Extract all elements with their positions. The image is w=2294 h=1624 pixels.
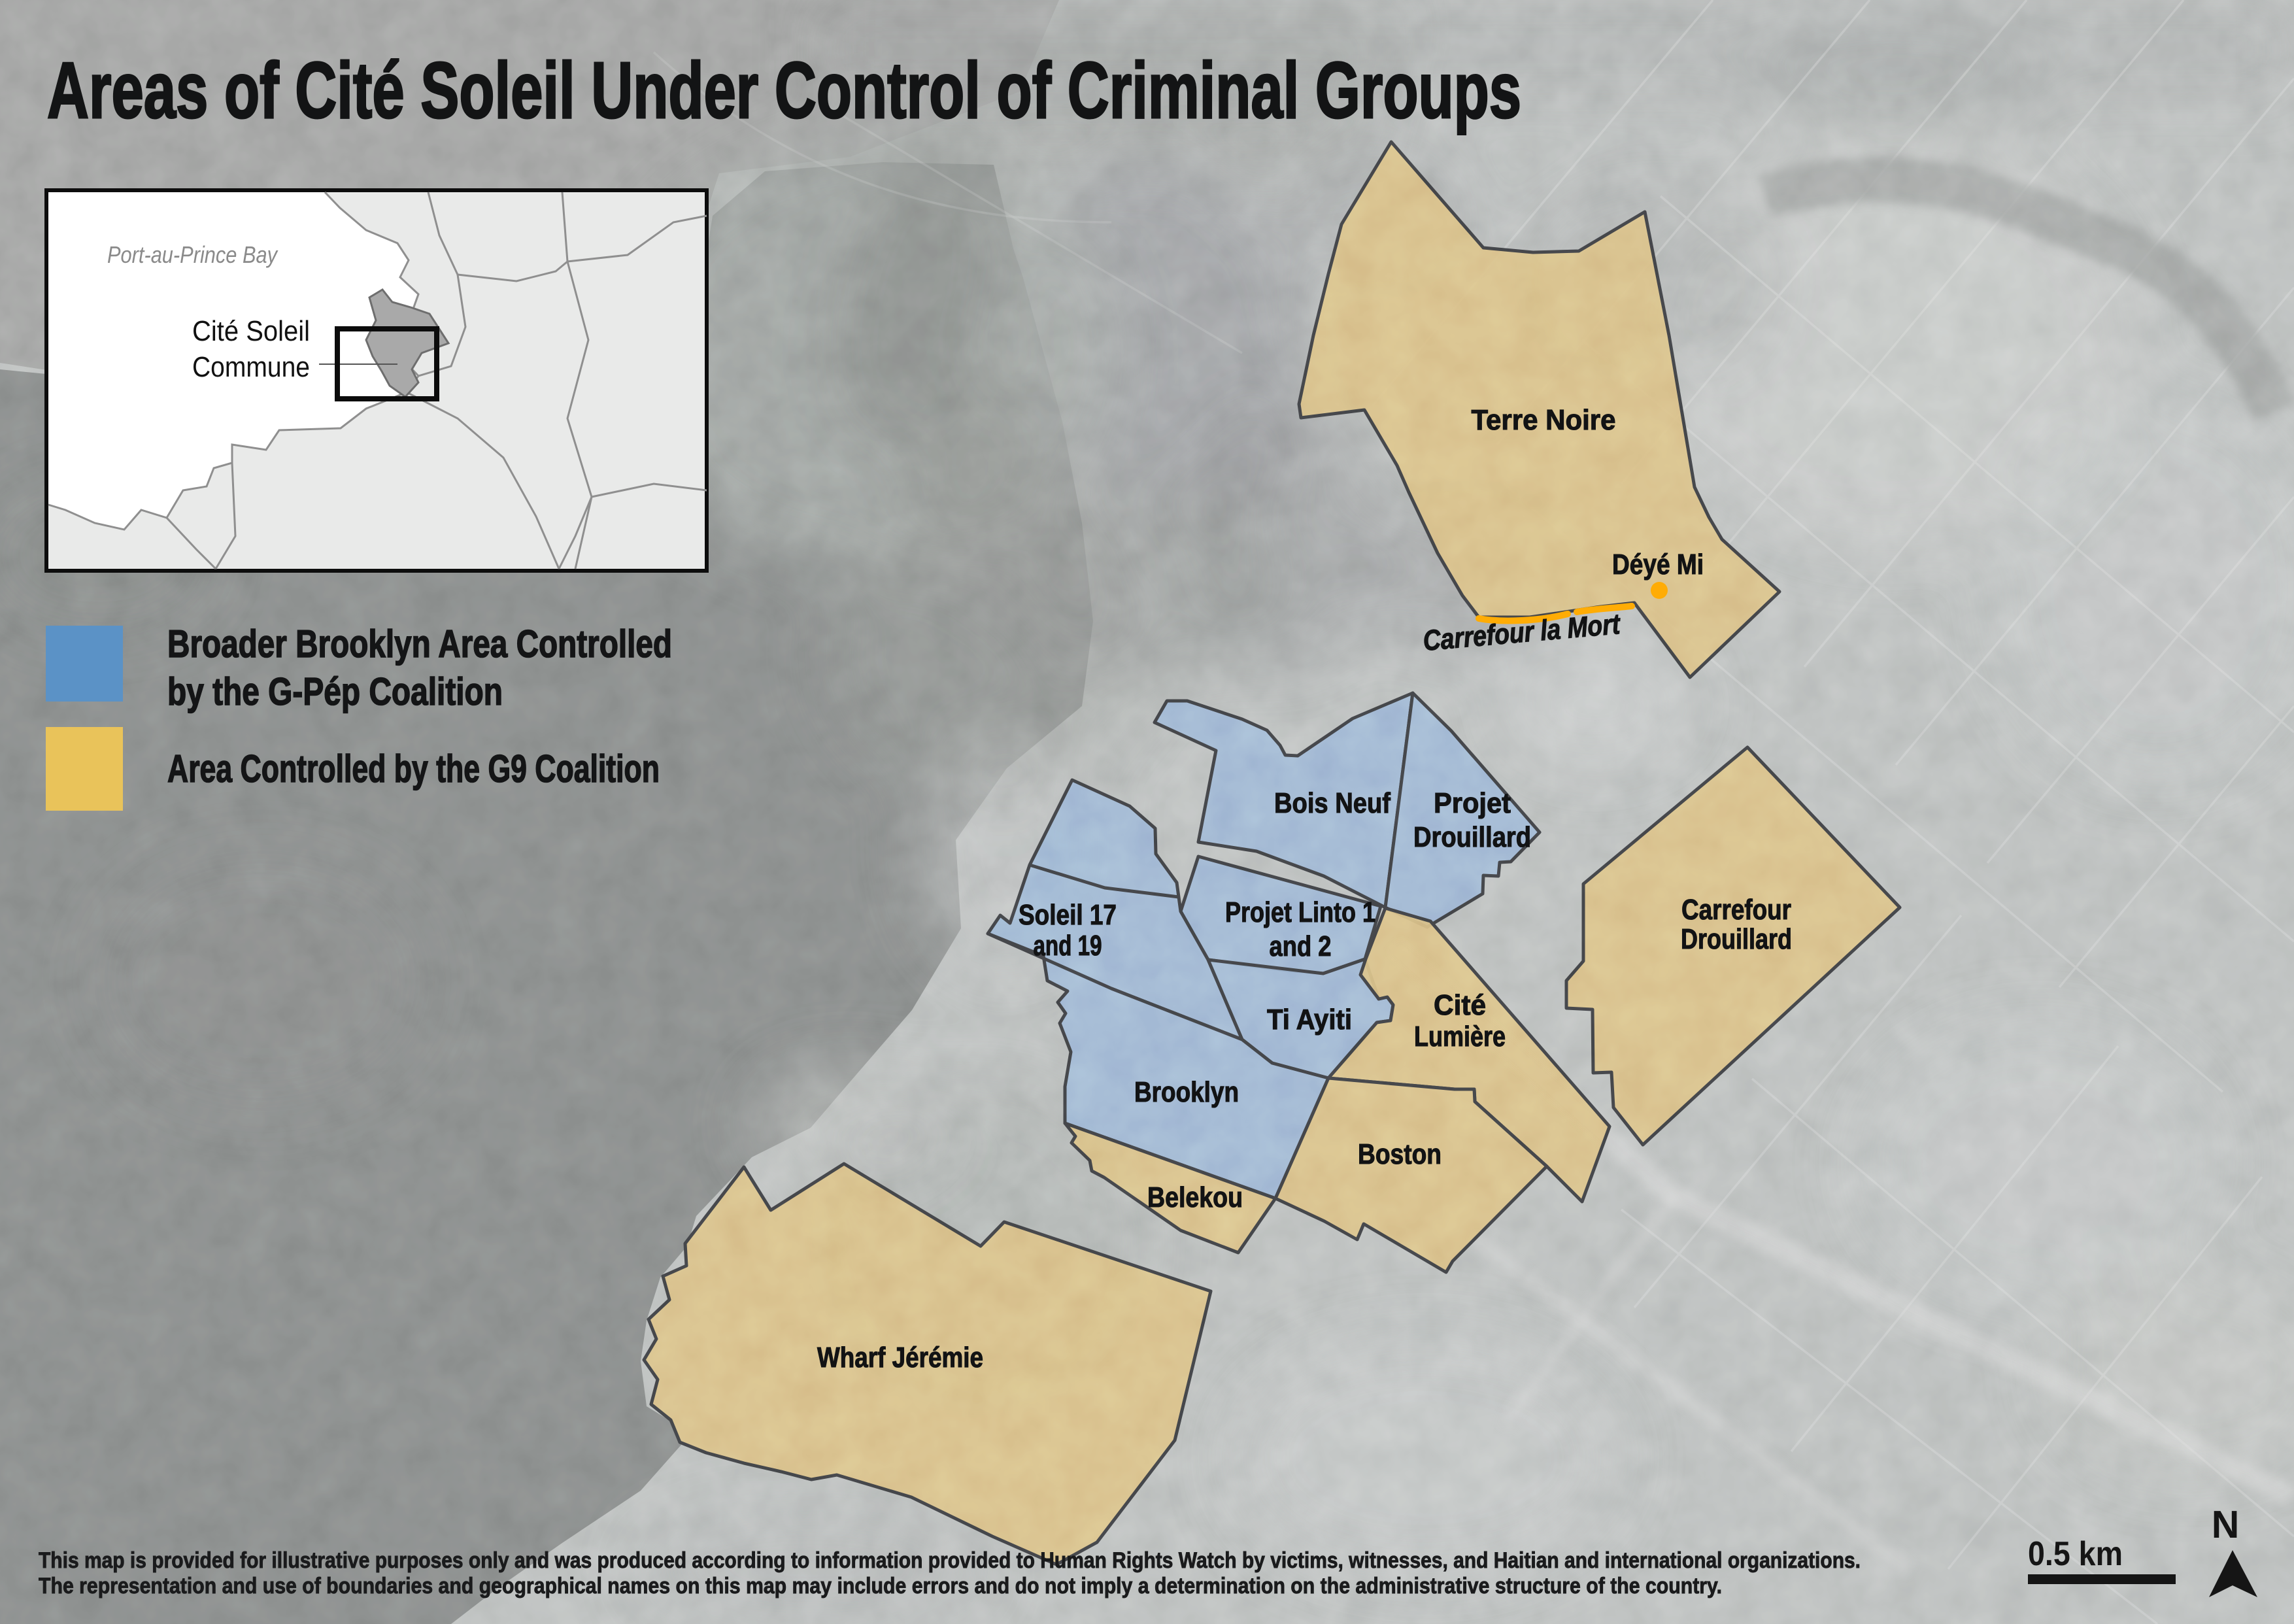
svg-text:Carrefour: Carrefour bbox=[1681, 894, 1791, 926]
svg-text:and 2: and 2 bbox=[1270, 930, 1332, 962]
svg-text:Drouillard: Drouillard bbox=[1681, 923, 1792, 955]
svg-text:Area Controlled by the G9 Coal: Area Controlled by the G9 Coalition bbox=[167, 747, 660, 790]
svg-text:Boston: Boston bbox=[1358, 1138, 1442, 1170]
svg-text:Commune: Commune bbox=[192, 351, 310, 383]
svg-text:The representation and use of: The representation and use of boundaries… bbox=[39, 1574, 1722, 1599]
svg-text:Cité Soleil: Cité Soleil bbox=[192, 315, 310, 347]
svg-text:0.5 km: 0.5 km bbox=[2028, 1535, 2123, 1573]
svg-text:Wharf Jérémie: Wharf Jérémie bbox=[817, 1342, 983, 1374]
svg-text:N: N bbox=[2212, 1503, 2240, 1546]
svg-text:Belekou: Belekou bbox=[1147, 1181, 1243, 1213]
svg-text:Port-au-Prince Bay: Port-au-Prince Bay bbox=[107, 241, 278, 268]
svg-text:Ti Ayiti: Ti Ayiti bbox=[1267, 1004, 1352, 1036]
svg-text:Cité: Cité bbox=[1434, 989, 1486, 1021]
svg-text:Déyé Mi: Déyé Mi bbox=[1612, 549, 1704, 581]
svg-text:by the G-Pép Coalition: by the G-Pép Coalition bbox=[167, 670, 503, 713]
svg-text:Areas of Cité Soleil Under Con: Areas of Cité Soleil Under Control of Cr… bbox=[47, 46, 1521, 135]
svg-text:Bois Neuf: Bois Neuf bbox=[1274, 787, 1391, 819]
svg-text:Soleil 17: Soleil 17 bbox=[1019, 899, 1117, 931]
svg-text:Terre Noire: Terre Noire bbox=[1472, 404, 1616, 436]
svg-text:Brooklyn: Brooklyn bbox=[1134, 1076, 1239, 1108]
svg-text:Projet: Projet bbox=[1434, 787, 1511, 819]
svg-text:Lumière: Lumière bbox=[1414, 1021, 1506, 1053]
svg-text:Drouillard: Drouillard bbox=[1413, 821, 1531, 853]
svg-text:and 19: and 19 bbox=[1034, 930, 1102, 962]
svg-text:Broader Brooklyn Area Controll: Broader Brooklyn Area Controlled bbox=[167, 622, 672, 666]
svg-text:Projet Linto 1: Projet Linto 1 bbox=[1225, 896, 1375, 928]
svg-text:This map is provided for illus: This map is provided for illustrative pu… bbox=[39, 1548, 1861, 1573]
